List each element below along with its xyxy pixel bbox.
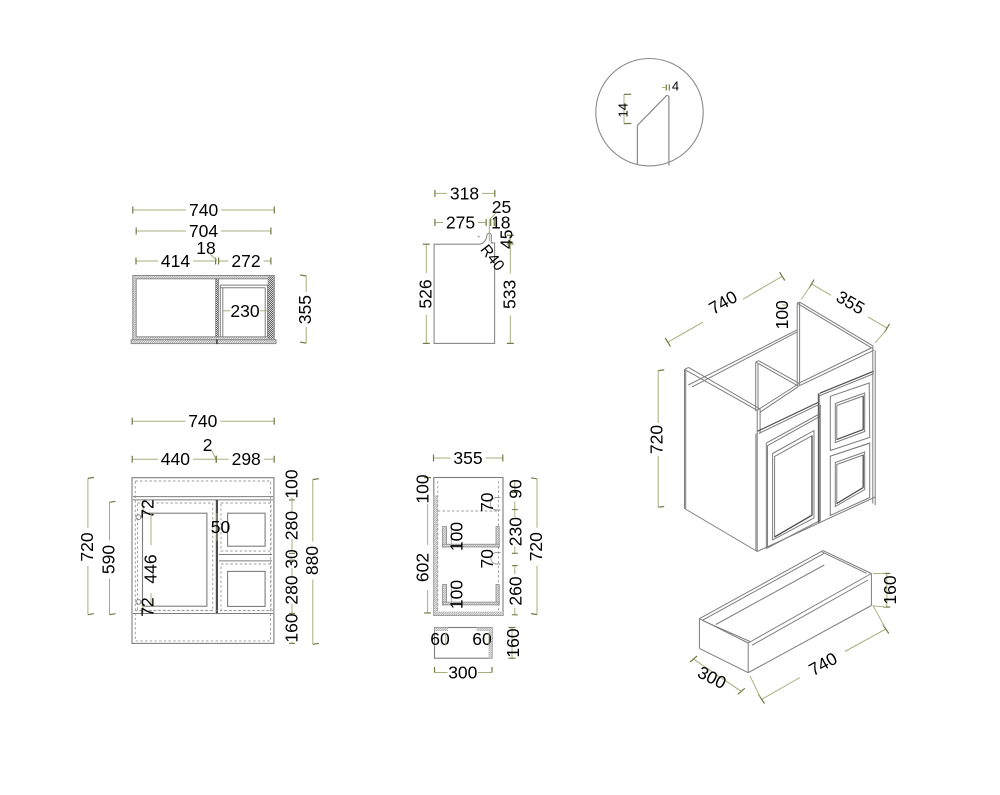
svg-text:14: 14: [615, 103, 630, 117]
svg-text:720: 720: [77, 532, 97, 561]
svg-text:590: 590: [99, 545, 119, 574]
svg-text:72: 72: [138, 499, 158, 518]
svg-text:100: 100: [282, 469, 302, 498]
svg-text:260: 260: [505, 576, 525, 605]
svg-text:160: 160: [880, 575, 900, 604]
svg-text:100: 100: [772, 300, 792, 329]
svg-text:2: 2: [203, 435, 213, 455]
svg-text:275: 275: [446, 213, 475, 233]
svg-text:526: 526: [415, 279, 435, 308]
svg-text:60: 60: [430, 629, 450, 649]
svg-text:355: 355: [453, 448, 482, 468]
svg-text:298: 298: [232, 449, 261, 469]
svg-text:160: 160: [282, 613, 302, 642]
svg-text:720: 720: [646, 425, 666, 454]
svg-text:300: 300: [448, 663, 477, 683]
svg-text:440: 440: [161, 449, 190, 469]
svg-text:355: 355: [295, 295, 315, 324]
svg-text:4: 4: [672, 79, 679, 94]
svg-text:160: 160: [503, 628, 523, 657]
svg-text:18: 18: [196, 238, 215, 258]
svg-text:280: 280: [282, 575, 302, 604]
svg-text:18: 18: [491, 213, 510, 233]
svg-text:72: 72: [138, 597, 158, 616]
svg-text:280: 280: [282, 511, 302, 540]
svg-text:414: 414: [161, 251, 190, 271]
svg-text:720: 720: [526, 532, 546, 561]
svg-text:740: 740: [188, 411, 217, 431]
svg-text:880: 880: [302, 546, 322, 575]
svg-text:230: 230: [230, 301, 259, 321]
svg-text:30: 30: [282, 549, 302, 569]
svg-text:740: 740: [189, 200, 218, 220]
svg-text:272: 272: [231, 251, 260, 271]
svg-text:70: 70: [477, 492, 497, 512]
svg-text:50: 50: [211, 517, 231, 537]
svg-text:100: 100: [447, 522, 467, 551]
svg-text:602: 602: [413, 553, 433, 582]
svg-text:533: 533: [499, 280, 519, 309]
svg-text:90: 90: [505, 479, 525, 499]
svg-text:230: 230: [505, 517, 525, 546]
svg-text:70: 70: [477, 549, 497, 569]
svg-text:318: 318: [450, 183, 479, 203]
svg-text:446: 446: [141, 554, 161, 583]
svg-text:100: 100: [447, 580, 467, 609]
svg-text:100: 100: [413, 474, 433, 503]
svg-text:45: 45: [497, 230, 517, 249]
